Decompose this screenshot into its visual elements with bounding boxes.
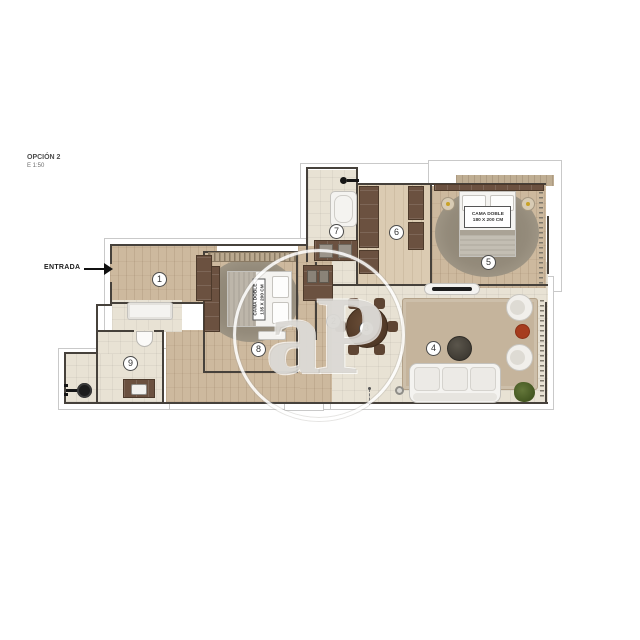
sink-basin xyxy=(338,244,352,258)
floor-lamp xyxy=(395,386,404,395)
room-number-4: 4 xyxy=(426,341,441,356)
tv-icon xyxy=(432,287,472,291)
window-frame xyxy=(547,216,549,274)
closet-door xyxy=(319,270,329,283)
wall xyxy=(168,302,204,304)
armchair xyxy=(506,294,533,321)
room-number-8: 8 xyxy=(251,342,266,357)
dimension-dot xyxy=(368,387,371,390)
dimension-line xyxy=(369,389,370,405)
entrance-arrow-line xyxy=(84,268,106,270)
armchair xyxy=(506,344,533,371)
hall-closet xyxy=(303,265,333,301)
valve-icon xyxy=(64,393,68,396)
lamp-bulb xyxy=(446,202,450,206)
shower-tray xyxy=(127,302,173,320)
bathtub-inner xyxy=(334,195,353,223)
faucet-icon xyxy=(340,177,347,184)
wall xyxy=(110,282,112,304)
lamp-bulb xyxy=(526,202,530,206)
sofa xyxy=(409,363,501,403)
wall xyxy=(430,183,432,288)
bed-size-label-second: CAMA DOBLE 135 X 200 CM xyxy=(253,279,266,321)
wall xyxy=(162,330,164,403)
alcove-floor xyxy=(64,354,122,402)
plan-option-label: OPCIÓN 2 xyxy=(27,154,60,161)
wall xyxy=(358,183,432,185)
room-number-9: 9 xyxy=(123,356,138,371)
bathtub xyxy=(330,191,357,227)
wall xyxy=(203,371,298,373)
wardrobe xyxy=(408,222,424,250)
wall xyxy=(545,302,547,402)
side-table-red xyxy=(515,324,530,339)
entrance-label: ENTRADA xyxy=(44,264,80,271)
room-number-3: 3 xyxy=(359,321,374,336)
armchair-cushion xyxy=(510,350,525,365)
wall xyxy=(306,167,308,262)
wall xyxy=(64,352,98,354)
terrace-hatch-bedroom xyxy=(539,192,543,286)
wall xyxy=(110,244,112,264)
sofa-cushion xyxy=(470,367,496,391)
terrace-hatch-living xyxy=(540,300,544,400)
room-number-2: 2 xyxy=(326,314,341,329)
bed-size-label-master: CAMA DOBLE 180 X 200 CM xyxy=(464,206,511,228)
room-number-1: 1 xyxy=(152,272,167,287)
bench xyxy=(258,331,286,340)
wall xyxy=(154,330,164,332)
entrance-arrow-head xyxy=(104,263,113,275)
wall xyxy=(296,251,298,373)
plan-scale-label: E 1:50 xyxy=(27,163,44,169)
room-number-7: 7 xyxy=(329,224,344,239)
wall xyxy=(96,304,112,306)
sink-vanity xyxy=(123,379,155,398)
pillow xyxy=(272,302,289,324)
valve-icon xyxy=(64,384,68,387)
wall xyxy=(306,167,358,169)
corridor-bottom-floor xyxy=(166,330,300,402)
bedside-lamp xyxy=(521,197,535,211)
sink-basin xyxy=(131,384,147,395)
room-number-5: 5 xyxy=(481,255,496,270)
double-sink-vanity xyxy=(314,240,358,261)
bedside-lamp xyxy=(441,197,455,211)
blanket xyxy=(460,235,515,256)
coffee-table xyxy=(447,336,472,361)
towel-bar-icon xyxy=(347,179,359,182)
wardrobe xyxy=(359,186,379,248)
wardrobe xyxy=(196,255,212,301)
sofa-cushion xyxy=(442,367,468,391)
closet-shelf xyxy=(208,252,296,262)
tv-console xyxy=(424,283,480,295)
sofa-cushion xyxy=(414,367,440,391)
washing-machine-icon xyxy=(77,383,92,398)
dining-chair xyxy=(387,321,398,332)
wall xyxy=(96,330,134,332)
wall xyxy=(64,352,66,404)
wardrobe xyxy=(408,186,424,220)
pillow xyxy=(272,276,289,298)
plant xyxy=(514,382,535,402)
closet-door xyxy=(307,270,317,283)
wall xyxy=(110,244,306,246)
wardrobe xyxy=(359,250,379,274)
sink-basin xyxy=(319,244,333,258)
floor-plan: OPCIÓN 2 E 1:50 xyxy=(0,0,640,640)
room-number-6: 6 xyxy=(389,225,404,240)
armchair-cushion xyxy=(510,300,525,315)
headboard xyxy=(434,184,544,191)
sofa-back xyxy=(413,393,497,401)
